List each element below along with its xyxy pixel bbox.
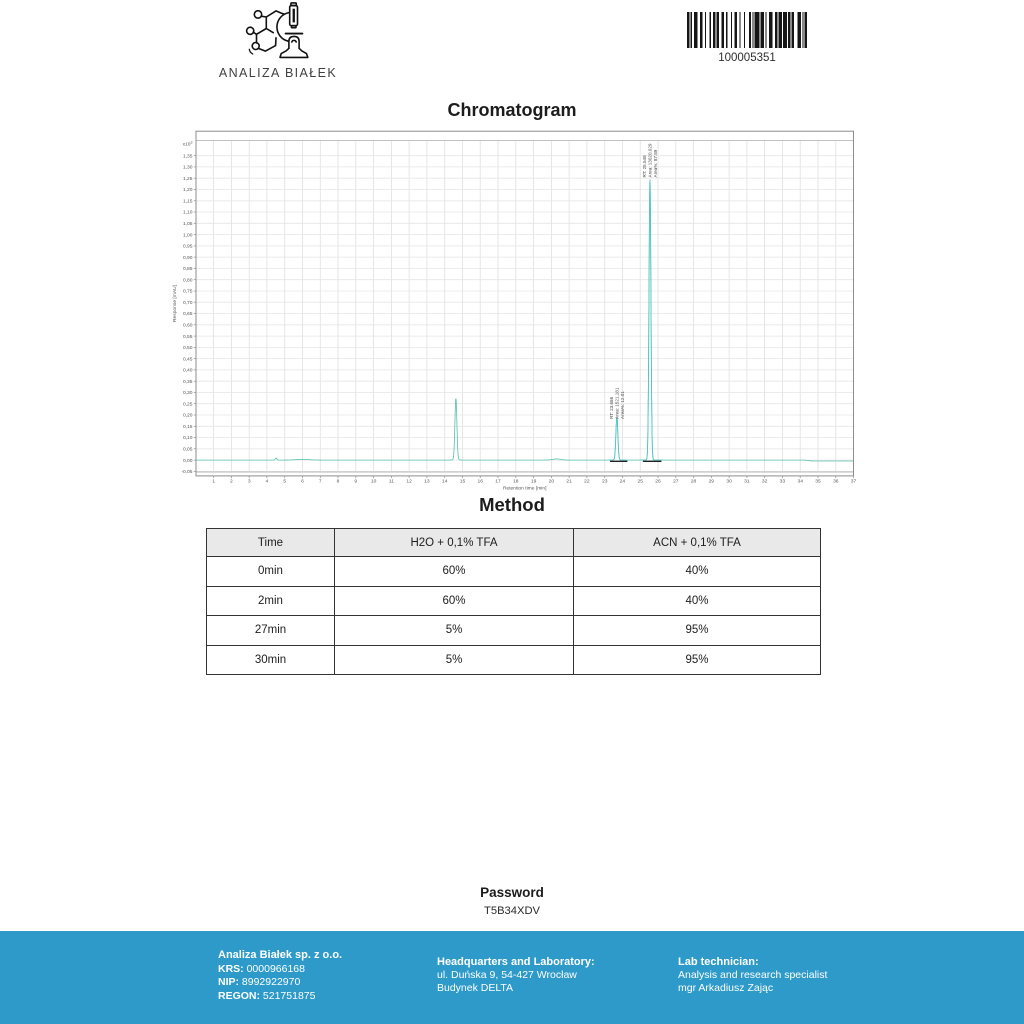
svg-text:33: 33 [780, 479, 786, 485]
svg-text:0,10: 0,10 [183, 435, 193, 441]
svg-text:27: 27 [673, 479, 679, 485]
svg-text:Retention time [min]: Retention time [min] [503, 485, 547, 491]
svg-text:14: 14 [442, 479, 448, 485]
svg-text:1,30: 1,30 [183, 165, 193, 171]
svg-text:5: 5 [283, 479, 286, 485]
svg-text:4: 4 [266, 479, 269, 485]
svg-text:36: 36 [833, 479, 839, 485]
svg-text:0,65: 0,65 [183, 311, 193, 317]
svg-text:0,90: 0,90 [183, 255, 193, 261]
svg-text:28: 28 [691, 479, 697, 485]
svg-text:2: 2 [230, 479, 233, 485]
svg-text:11: 11 [389, 479, 394, 485]
svg-text:Area: 1521.181: Area: 1521.181 [615, 387, 620, 419]
svg-text:29: 29 [709, 479, 715, 485]
svg-text:9: 9 [354, 479, 357, 485]
svg-text:1,20: 1,20 [183, 187, 193, 193]
svg-text:1,35: 1,35 [183, 153, 193, 159]
svg-text:0,95: 0,95 [183, 244, 193, 250]
svg-text:Area%: 12.01: Area%: 12.01 [620, 391, 625, 419]
svg-text:Response [mAU]: Response [mAU] [172, 284, 178, 322]
svg-text:34: 34 [797, 479, 803, 485]
svg-text:0,45: 0,45 [183, 356, 193, 362]
svg-text:0,85: 0,85 [183, 266, 193, 272]
svg-text:37: 37 [851, 479, 857, 485]
svg-text:Area%: 87.89: Area%: 87.89 [653, 149, 658, 177]
svg-text:0,30: 0,30 [183, 390, 193, 396]
svg-text:1: 1 [212, 479, 215, 485]
svg-text:1,15: 1,15 [183, 199, 193, 205]
svg-text:0,20: 0,20 [183, 413, 193, 419]
svg-text:25: 25 [637, 479, 643, 485]
svg-text:23: 23 [602, 479, 608, 485]
svg-text:26: 26 [655, 479, 661, 485]
svg-text:20: 20 [549, 479, 555, 485]
svg-text:0,05: 0,05 [183, 447, 193, 453]
svg-text:0,60: 0,60 [183, 323, 193, 329]
svg-text:22: 22 [584, 479, 590, 485]
svg-text:16: 16 [477, 479, 483, 485]
svg-text:13: 13 [424, 479, 430, 485]
svg-text:0,55: 0,55 [183, 334, 193, 340]
svg-text:x103: x103 [183, 141, 193, 148]
svg-text:1,05: 1,05 [183, 221, 193, 227]
svg-text:3: 3 [248, 479, 251, 485]
svg-text:12: 12 [406, 479, 412, 485]
svg-text:0,00: 0,00 [183, 458, 193, 464]
svg-text:31: 31 [744, 479, 750, 485]
svg-text:24: 24 [620, 479, 626, 485]
svg-text:19: 19 [531, 479, 537, 485]
svg-text:30: 30 [726, 479, 732, 485]
svg-text:0,50: 0,50 [183, 345, 193, 351]
svg-text:0,70: 0,70 [183, 300, 193, 306]
svg-text:1,25: 1,25 [183, 176, 193, 182]
svg-text:0,75: 0,75 [183, 289, 193, 295]
svg-text:35: 35 [815, 479, 821, 485]
svg-text:0,35: 0,35 [183, 379, 193, 385]
svg-text:1,10: 1,10 [183, 210, 193, 216]
svg-text:0,40: 0,40 [183, 368, 193, 374]
svg-text:7: 7 [319, 479, 322, 485]
svg-text:8: 8 [337, 479, 340, 485]
svg-text:RT: 23.686: RT: 23.686 [609, 396, 614, 419]
svg-text:0,80: 0,80 [183, 277, 193, 283]
svg-text:32: 32 [762, 479, 768, 485]
svg-text:-0,05: -0,05 [181, 469, 192, 475]
svg-text:18: 18 [513, 479, 519, 485]
svg-text:6: 6 [301, 479, 304, 485]
svg-text:0,25: 0,25 [183, 401, 193, 407]
svg-text:21: 21 [566, 479, 572, 485]
svg-text:17: 17 [495, 479, 501, 485]
svg-text:RT: 25.548: RT: 25.548 [642, 155, 647, 178]
svg-text:1,00: 1,00 [183, 232, 193, 238]
svg-text:15: 15 [460, 479, 466, 485]
svg-text:Area: 13020.029: Area: 13020.029 [648, 143, 653, 177]
svg-text:10: 10 [371, 479, 377, 485]
svg-text:0,15: 0,15 [183, 424, 193, 430]
